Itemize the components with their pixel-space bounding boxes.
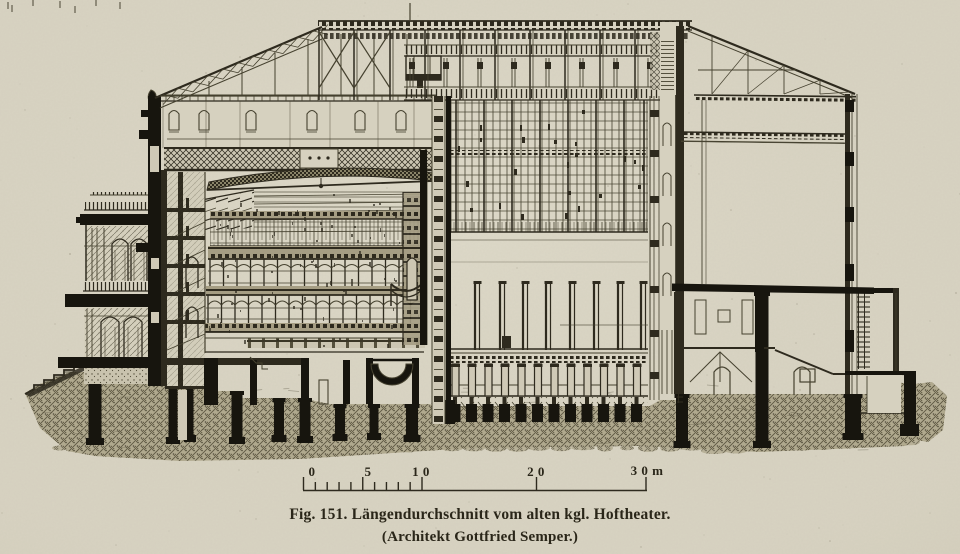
svg-text:0: 0 xyxy=(309,464,316,479)
svg-text:3 0 m: 3 0 m xyxy=(631,463,664,478)
svg-text:2 0: 2 0 xyxy=(527,464,545,479)
svg-text:Fig. 151. Längendurchschnitt: Fig. 151. Längendurchschnitt vom alten k… xyxy=(289,506,670,523)
svg-text:1 0: 1 0 xyxy=(412,464,430,479)
svg-text:5: 5 xyxy=(365,464,372,479)
svg-text:(Architekt Gottfried Semper.): (Architekt Gottfried Semper.) xyxy=(382,529,578,545)
